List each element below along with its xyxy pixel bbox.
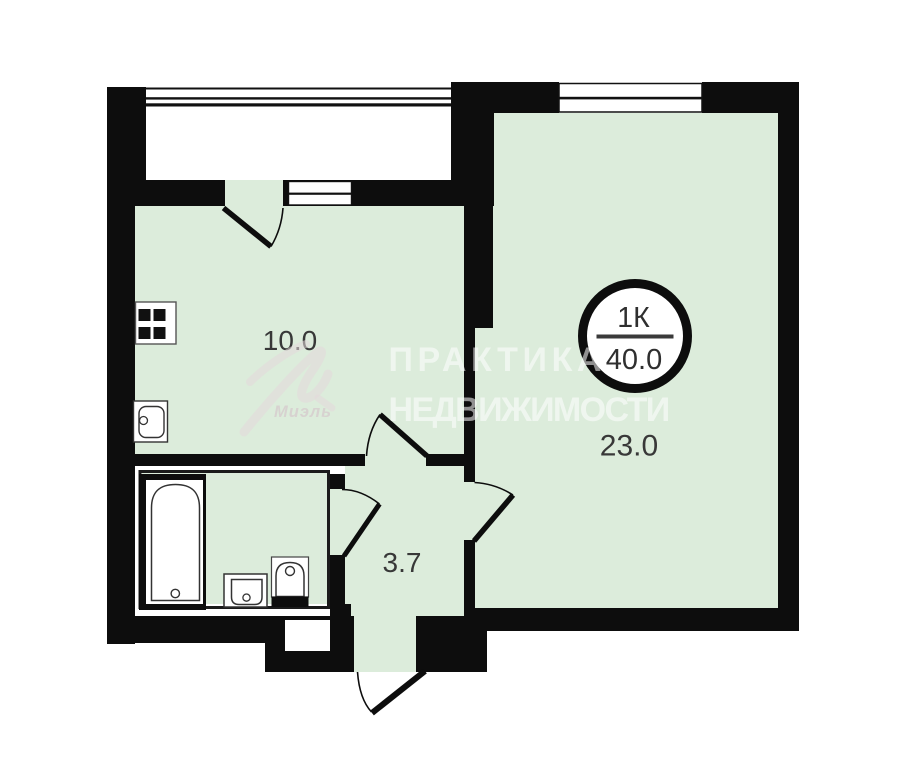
svg-text:НЕДВИЖИМОСТИ: НЕДВИЖИМОСТИ (389, 391, 669, 429)
svg-text:3.7: 3.7 (383, 547, 422, 578)
svg-text:Миэль: Миэль (274, 403, 332, 421)
svg-text:40.0: 40.0 (606, 344, 662, 376)
svg-text:ПРАКТИКА: ПРАКТИКА (389, 341, 607, 379)
svg-text:1К: 1К (617, 302, 650, 334)
svg-text:23.0: 23.0 (600, 430, 658, 463)
